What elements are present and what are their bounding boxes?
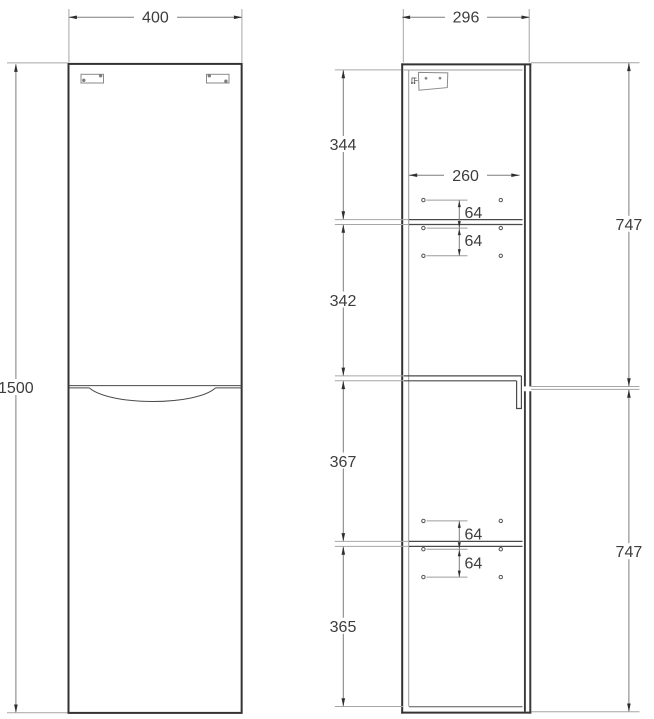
svg-text:1500: 1500 — [0, 380, 34, 397]
svg-text:747: 747 — [616, 544, 643, 561]
svg-text:747: 747 — [616, 217, 643, 234]
svg-text:296: 296 — [453, 10, 480, 27]
svg-text:342: 342 — [330, 293, 357, 310]
svg-text:64: 64 — [465, 233, 483, 250]
svg-text:365: 365 — [330, 619, 357, 636]
svg-text:64: 64 — [465, 556, 483, 573]
svg-text:344: 344 — [330, 137, 357, 154]
svg-text:64: 64 — [465, 526, 483, 543]
svg-text:367: 367 — [330, 454, 357, 471]
svg-text:400: 400 — [142, 10, 169, 27]
svg-text:260: 260 — [452, 168, 479, 185]
svg-text:64: 64 — [465, 205, 483, 222]
